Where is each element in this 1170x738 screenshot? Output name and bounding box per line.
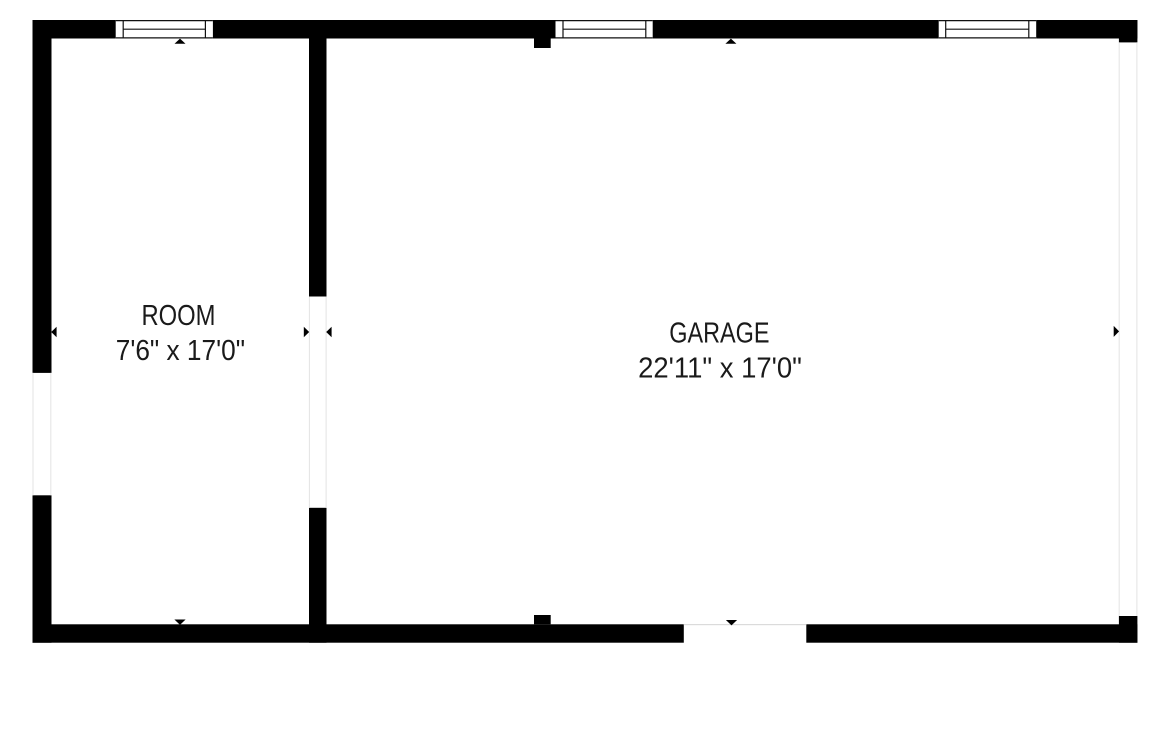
svg-text:22'11" x 17'0": 22'11" x 17'0" bbox=[638, 353, 802, 385]
svg-text:7'6" x 17'0": 7'6" x 17'0" bbox=[116, 335, 245, 367]
svg-text:GARAGE: GARAGE bbox=[669, 317, 769, 349]
svg-text:ROOM: ROOM bbox=[142, 300, 216, 332]
